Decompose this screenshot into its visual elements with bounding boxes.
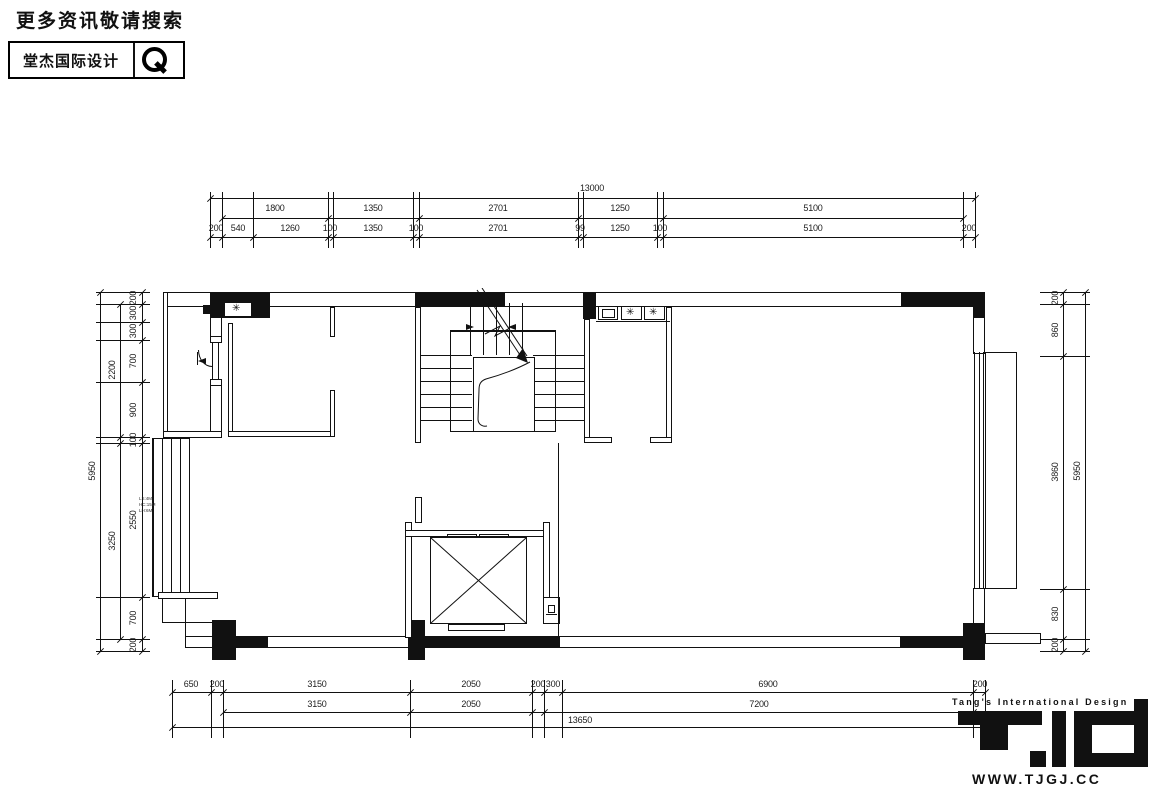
elevator-cross xyxy=(430,537,527,624)
column-top-right xyxy=(901,292,985,307)
dim-label: 1260 xyxy=(280,223,299,233)
dim-label: 2200 xyxy=(107,360,117,379)
dim-label: 300 xyxy=(128,306,138,320)
elevator-stub-wall xyxy=(415,497,422,523)
dim-label: 900 xyxy=(128,403,138,417)
dim-label: 1350 xyxy=(363,203,382,213)
line xyxy=(1085,292,1086,651)
dim-label: 2550 xyxy=(128,510,138,529)
line xyxy=(663,192,664,248)
wall-right-lower xyxy=(973,588,985,625)
dim-label: 300 xyxy=(128,324,138,338)
line xyxy=(162,622,212,623)
line xyxy=(419,192,420,248)
arrow-right-icon xyxy=(466,324,474,330)
dim-label: 100 xyxy=(409,223,423,233)
line xyxy=(210,198,975,199)
line xyxy=(973,680,974,738)
line xyxy=(211,680,212,738)
dim-label: 2050 xyxy=(461,699,480,709)
line xyxy=(223,712,973,713)
fan-icon: ✳ xyxy=(649,308,657,318)
line xyxy=(410,680,411,738)
line xyxy=(1063,292,1064,651)
brand-name: 堂杰国际设计 xyxy=(12,50,130,71)
elevator-wall-left xyxy=(405,522,412,638)
column-top-3 xyxy=(583,292,596,319)
dim-label: 3250 xyxy=(107,531,117,550)
line xyxy=(450,330,556,331)
line xyxy=(185,599,186,636)
wall-left-jog xyxy=(163,431,222,438)
website-url: WWW.TJGJ.CC xyxy=(972,771,1101,787)
line xyxy=(1040,356,1090,357)
dim-label: 3150 xyxy=(307,679,326,689)
dim-label: 3860 xyxy=(1050,462,1060,481)
page-title: 更多资讯敬请搜索 xyxy=(16,6,184,33)
door-jamb-bottom xyxy=(210,379,222,386)
outline-mark xyxy=(602,309,615,318)
line xyxy=(120,304,121,639)
black-mark xyxy=(203,305,210,314)
tjid-logo-dot xyxy=(1030,751,1046,767)
dim-label: 5950 xyxy=(1072,461,1082,480)
tjid-logo-t-stem xyxy=(980,725,1008,750)
ledge-bottom-right xyxy=(985,633,1041,644)
line xyxy=(583,192,584,248)
column-bottom-right xyxy=(963,623,985,660)
dim-label: 7200 xyxy=(749,699,768,709)
company-name: Tang's International Design xyxy=(952,697,1152,707)
line xyxy=(172,727,985,728)
dim-label: 700 xyxy=(128,354,138,368)
dim-label: 300 xyxy=(546,679,560,689)
dim-label: 860 xyxy=(1050,323,1060,337)
line xyxy=(1040,304,1090,305)
wall-top xyxy=(163,292,985,307)
kitchen-wall-right-foot xyxy=(650,437,672,443)
line xyxy=(172,692,985,693)
line xyxy=(657,192,658,248)
line xyxy=(596,321,670,322)
fan-icon: ✳ xyxy=(232,304,240,314)
wall-right-upper xyxy=(973,317,985,354)
dim-label: 1250 xyxy=(610,223,629,233)
line xyxy=(558,443,559,637)
line xyxy=(210,237,975,238)
tjid-logo-d-notch xyxy=(1092,725,1136,753)
wall-bottom-black-mid xyxy=(423,636,560,648)
dim-label: 650 xyxy=(184,679,198,689)
partition-room-horizontal xyxy=(228,431,335,437)
door-swing-arc xyxy=(198,350,212,367)
dim-label: 5100 xyxy=(803,203,822,213)
partition-room-vertical xyxy=(228,323,233,437)
arrow-left-icon xyxy=(508,324,516,330)
elevator-wall-right xyxy=(543,522,550,598)
dim-label: 2701 xyxy=(488,203,507,213)
line xyxy=(546,614,557,615)
dim-label: 2050 xyxy=(461,679,480,689)
line xyxy=(1040,589,1090,590)
line xyxy=(253,192,254,248)
dim-label: 830 xyxy=(1050,607,1060,621)
line xyxy=(210,192,211,248)
line xyxy=(544,680,545,738)
window-right-outer-frame xyxy=(985,352,1017,589)
dim-label: 5950 xyxy=(87,461,97,480)
wall-bottom-black-right xyxy=(901,636,963,648)
dim-label: 1800 xyxy=(265,203,284,213)
dim-label: 100 xyxy=(653,223,667,233)
bay-window-left xyxy=(152,438,190,597)
line xyxy=(172,680,173,738)
wall-left-outer-skin xyxy=(163,292,168,438)
dim-label: 100 xyxy=(323,223,337,233)
kitchen-wall-left xyxy=(584,319,590,443)
floor-plan-page: 更多资讯敬请搜索 堂杰国际设计 ✳ xyxy=(0,0,1158,800)
dim-label: 700 xyxy=(128,611,138,625)
stair-direction-arrow xyxy=(452,288,542,380)
line xyxy=(963,192,964,248)
dim-label: 5100 xyxy=(803,223,822,233)
elevator-wall-top xyxy=(405,530,550,537)
dim-label: 540 xyxy=(231,223,245,233)
line xyxy=(222,192,223,248)
tjid-logo-t-bar xyxy=(958,711,1042,725)
column-bottom-left xyxy=(212,620,236,660)
line xyxy=(162,599,163,623)
door-panel xyxy=(212,342,219,380)
line xyxy=(562,680,563,738)
line xyxy=(413,192,414,248)
partition-b-lower xyxy=(330,390,335,437)
dim-label: 2701 xyxy=(488,223,507,233)
fan-icon: ✳ xyxy=(626,308,634,318)
dim-label: 100 xyxy=(128,433,138,447)
brand-box-divider xyxy=(133,43,135,77)
line xyxy=(1040,639,1090,640)
partition-b-upper xyxy=(330,307,335,337)
dim-label: 13650 xyxy=(568,715,592,725)
line xyxy=(223,680,224,738)
line xyxy=(532,680,533,738)
line xyxy=(333,192,334,248)
line xyxy=(975,192,976,248)
tjid-logo-i-bar xyxy=(1052,711,1066,767)
wall-left-below-door xyxy=(210,381,222,437)
kitchen-wall-right xyxy=(666,307,672,443)
outline-mark xyxy=(479,534,509,537)
bay-window-sill xyxy=(158,592,218,599)
dim-label: 6900 xyxy=(758,679,777,689)
dim-label: 1250 xyxy=(610,203,629,213)
kitchen-wall-left-foot xyxy=(584,437,612,443)
outline-mark xyxy=(548,605,555,613)
elevator-door xyxy=(448,624,505,631)
dim-label: 3150 xyxy=(307,699,326,709)
window-right xyxy=(974,352,984,589)
dim-label: 1350 xyxy=(363,223,382,233)
outline-mark xyxy=(447,534,477,537)
tjid-logo-d-stem xyxy=(1134,699,1148,767)
